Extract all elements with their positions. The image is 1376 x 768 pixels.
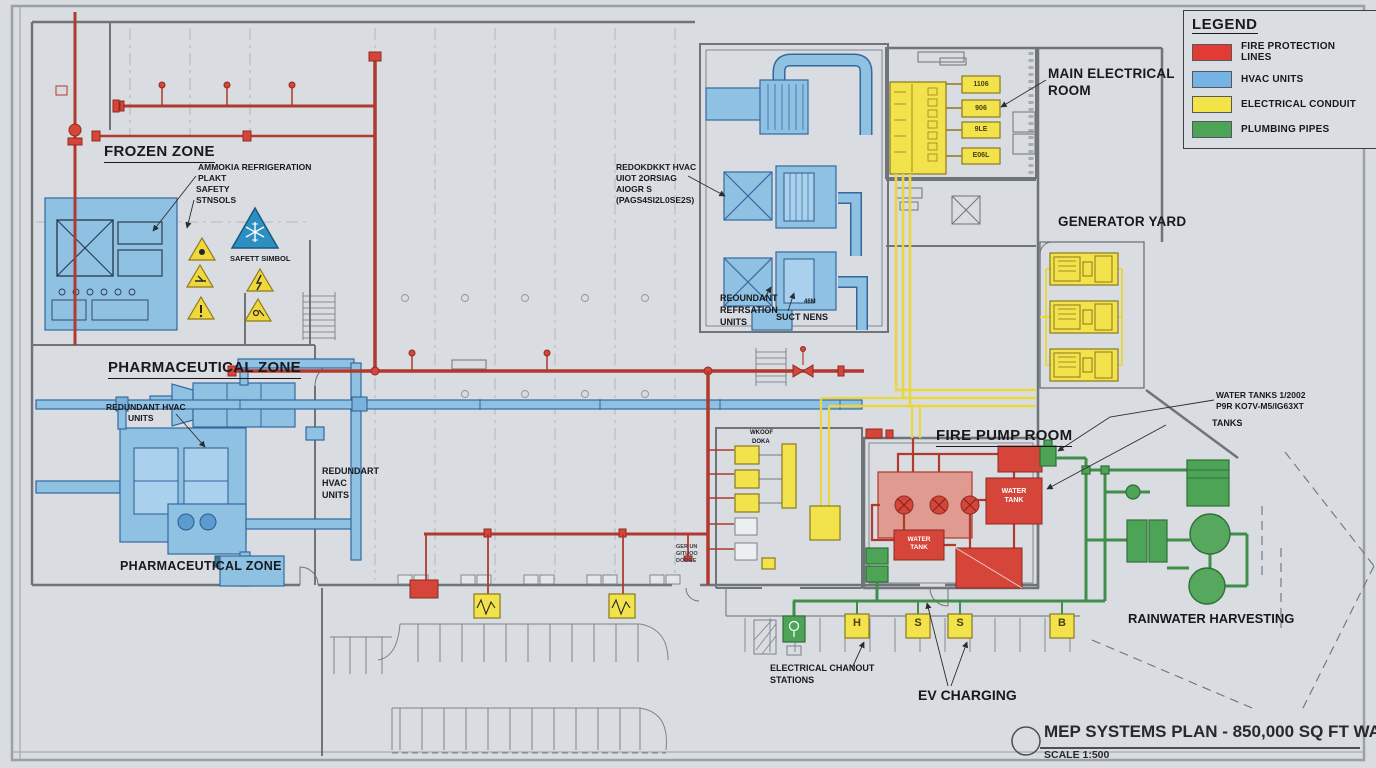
electrical-room-label-line2: ROOM (1048, 83, 1091, 99)
sheet-scale: SCALE 1:500 (1044, 749, 1109, 761)
fire-alarm-panel (410, 580, 438, 598)
sheet-title: MEP SYSTEMS PLAN - 850,000 SQ FT WAREHOU… (1044, 722, 1376, 742)
parking-lot (330, 588, 1080, 753)
door-note-line3: DOOGE (676, 558, 696, 565)
water-tank-large-label-line2: TANK (986, 497, 1042, 504)
legend-title: LEGEND (1192, 16, 1258, 34)
redundant-hvac-right-line3: UNITS (322, 490, 349, 501)
electrical-room-label-line1: MAIN ELECTRICAL (1048, 66, 1175, 82)
blueprint-sheet: FROZEN ZONE AMMOKIA REFRIGERATION PLAKT … (0, 0, 1376, 768)
electrical-swatch (1192, 96, 1232, 113)
hvac-swatch (1192, 71, 1232, 88)
duct-mains-label: SUCT NENS (776, 312, 828, 323)
plan-drawing (0, 0, 1376, 768)
door-note-line2: GITUOO (676, 551, 698, 558)
legend-label: FIRE PROTECTION LINES (1241, 41, 1368, 63)
room-note-line2: DOKA (752, 439, 770, 446)
legend-row-fire: FIRE PROTECTION LINES (1192, 41, 1368, 63)
ammonia-note-line2: PLAKT (198, 173, 226, 183)
plumbing-swatch (1192, 121, 1232, 138)
legend-row-electrical: ELECTRICAL CONDUIT (1192, 96, 1368, 113)
pharma-zone-title-2: PHARMACEUTICAL ZONE (120, 559, 282, 574)
fire-pump-room-equipment (866, 429, 1042, 588)
rooftop-note-line1: REDOKDKKT HVAC (616, 162, 696, 172)
legend-row-hvac: HVAC UNITS (1192, 71, 1368, 88)
ev-unit-glyph-2: S (906, 617, 930, 629)
legend-row-plumbing: PLUMBING PIPES (1192, 121, 1368, 138)
backflow-device (1040, 446, 1056, 466)
generators (1040, 253, 1122, 381)
water-tank-small-label-line2: TANK (894, 544, 944, 551)
chanout-label-line2: STATIONS (770, 675, 814, 686)
electrical-closet (735, 444, 840, 569)
water-tank-small-label-line1: WATER (894, 536, 944, 543)
pharma-hvac-units (36, 359, 361, 586)
frozen-zone-title: FROZEN ZONE (104, 143, 215, 163)
tanks-label: TANKS (1212, 418, 1242, 429)
hazard-warning-signs (187, 238, 273, 321)
pharma-zone-title: PHARMACEUTICAL ZONE (108, 359, 301, 379)
legend-label: PLUMBING PIPES (1241, 124, 1329, 135)
rooftop-note-line4: (PAGS4SI2L0SE2S) (616, 195, 694, 205)
ev-charging-label: EV CHARGING (918, 687, 1017, 704)
ev-charge-station-green (783, 616, 805, 655)
water-tank-large-label-line1: WATER (986, 488, 1042, 495)
redundant-hvac-left-line2: UNITS (128, 413, 154, 423)
breaker-tag-4: E06L (962, 148, 1000, 164)
redundant-hvac-right-line1: REDUNDART (322, 466, 379, 477)
duct-tag: 46M (804, 299, 816, 306)
ammonia-refrigeration-plant (45, 198, 177, 330)
safety-note-line2: STNSOLS (196, 195, 236, 205)
ev-unit-glyph-4: B (1050, 617, 1074, 629)
water-tanks-note-line1: WATER TANKS 1/2002 (1216, 390, 1305, 400)
main-electrical-panel (890, 82, 946, 174)
rooftop-note-line2: UIOT 2ORSIAG (616, 173, 677, 183)
legend-label: HVAC UNITS (1241, 74, 1303, 85)
grid-markers (402, 295, 649, 398)
door-note-line1: GER UN (676, 544, 697, 551)
legend: LEGEND FIRE PROTECTION LINES HVAC UNITS … (1183, 10, 1376, 149)
safety-symbols (187, 208, 278, 321)
redundant-hvac-right-line2: HVAC (322, 478, 347, 489)
breaker-tag-1: 1106 (962, 76, 1000, 93)
breaker-tag-3: 9LE (962, 122, 1000, 138)
fire-pump-room-title: FIRE PUMP ROOM (936, 427, 1072, 447)
ammonia-note-line1: AMMOKIA REFRIGERATION (198, 162, 311, 172)
refrigeration-note-line1: REOUNDANT (720, 293, 778, 304)
water-tanks-note-line2: P9R KO7V-M5/IG63XT (1216, 401, 1304, 411)
room-note-line1: WKOOF (750, 430, 773, 437)
rainwater-label: RAINWATER HARVESTING (1128, 611, 1294, 627)
legend-label: ELECTRICAL CONDUIT (1241, 99, 1356, 110)
ev-unit-glyph-1: H (845, 617, 869, 629)
chanout-label-line1: ELECTRICAL CHANOUT (770, 663, 874, 674)
breaker-tag-2: 906 (962, 100, 1000, 117)
redundant-hvac-left-line1: REDUNDANT HVAC (106, 402, 186, 412)
flow-alarm-device (474, 594, 635, 618)
rainwater-harvesting-equipment (1056, 458, 1247, 604)
fire-swatch (1192, 44, 1232, 61)
safety-symbol-label: SAFETT SIMBOL (230, 254, 290, 263)
refrigeration-note-line2: REFRSATION (720, 305, 778, 316)
rooftop-note-line3: AIOGR S (616, 184, 652, 194)
generator-yard-label: GENERATOR YARD (1058, 214, 1186, 230)
rooftop-hvac-units (706, 60, 866, 330)
ev-unit-glyph-3: S (948, 617, 972, 629)
refrigeration-note-line3: UNITS (720, 317, 747, 328)
safety-note-line1: SAFETY (196, 184, 230, 194)
